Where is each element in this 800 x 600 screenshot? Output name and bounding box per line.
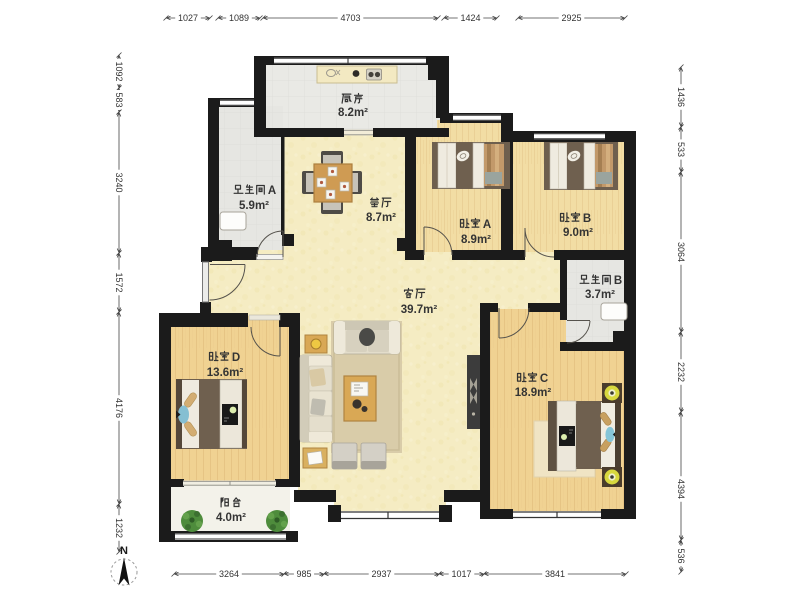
svg-text:B: B xyxy=(583,213,591,225)
svg-text:3240: 3240 xyxy=(114,172,124,192)
svg-text:1424: 1424 xyxy=(460,13,480,23)
svg-text:3064: 3064 xyxy=(676,242,686,262)
svg-text:D: D xyxy=(232,352,240,364)
svg-text:2925: 2925 xyxy=(561,13,581,23)
svg-text:3264: 3264 xyxy=(219,569,239,579)
svg-text:8.7m²: 8.7m² xyxy=(366,212,396,224)
svg-text:4394: 4394 xyxy=(676,479,686,499)
svg-text:A: A xyxy=(483,219,491,231)
svg-text:1017: 1017 xyxy=(451,569,471,579)
svg-text:4703: 4703 xyxy=(340,13,360,23)
svg-text:2232: 2232 xyxy=(676,362,686,382)
svg-text:536: 536 xyxy=(676,548,686,563)
svg-text:8.9m²: 8.9m² xyxy=(461,234,491,246)
svg-text:1572: 1572 xyxy=(114,272,124,292)
svg-text:583: 583 xyxy=(114,92,124,107)
svg-text:2937: 2937 xyxy=(371,569,391,579)
svg-text:B: B xyxy=(614,275,622,287)
svg-text:3.7m²: 3.7m² xyxy=(585,289,615,301)
svg-text:1232: 1232 xyxy=(114,518,124,538)
svg-text:C: C xyxy=(540,373,548,385)
svg-text:533: 533 xyxy=(676,142,686,157)
svg-text:4.0m²: 4.0m² xyxy=(216,512,246,524)
svg-text:N: N xyxy=(120,545,128,557)
svg-text:1089: 1089 xyxy=(229,13,249,23)
svg-text:18.9m²: 18.9m² xyxy=(515,387,552,399)
svg-text:985: 985 xyxy=(296,569,311,579)
svg-text:8.2m²: 8.2m² xyxy=(338,107,368,119)
svg-text:4176: 4176 xyxy=(114,398,124,418)
svg-text:5.9m²: 5.9m² xyxy=(239,200,269,212)
svg-text:9.0m²: 9.0m² xyxy=(563,227,593,239)
svg-text:1092: 1092 xyxy=(114,61,124,81)
svg-text:1436: 1436 xyxy=(676,87,686,107)
svg-text:3841: 3841 xyxy=(545,569,565,579)
svg-text:13.6m²: 13.6m² xyxy=(207,367,244,379)
svg-text:39.7m²: 39.7m² xyxy=(401,304,438,316)
svg-text:A: A xyxy=(268,185,276,197)
svg-text:1027: 1027 xyxy=(178,13,198,23)
